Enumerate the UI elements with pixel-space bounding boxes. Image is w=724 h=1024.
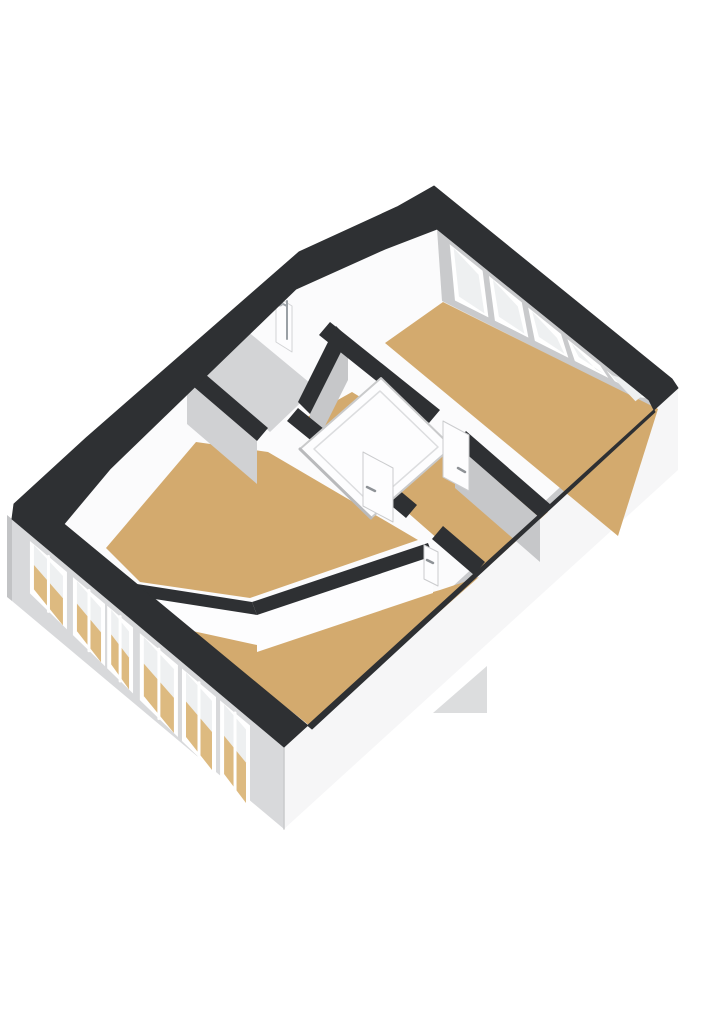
floor-plan-3d-canvas [0,0,724,1024]
floor-plan-3d-view [0,0,724,1024]
facade-nw-sliver [7,515,12,601]
door-bedroom-3-leaf [424,545,438,586]
